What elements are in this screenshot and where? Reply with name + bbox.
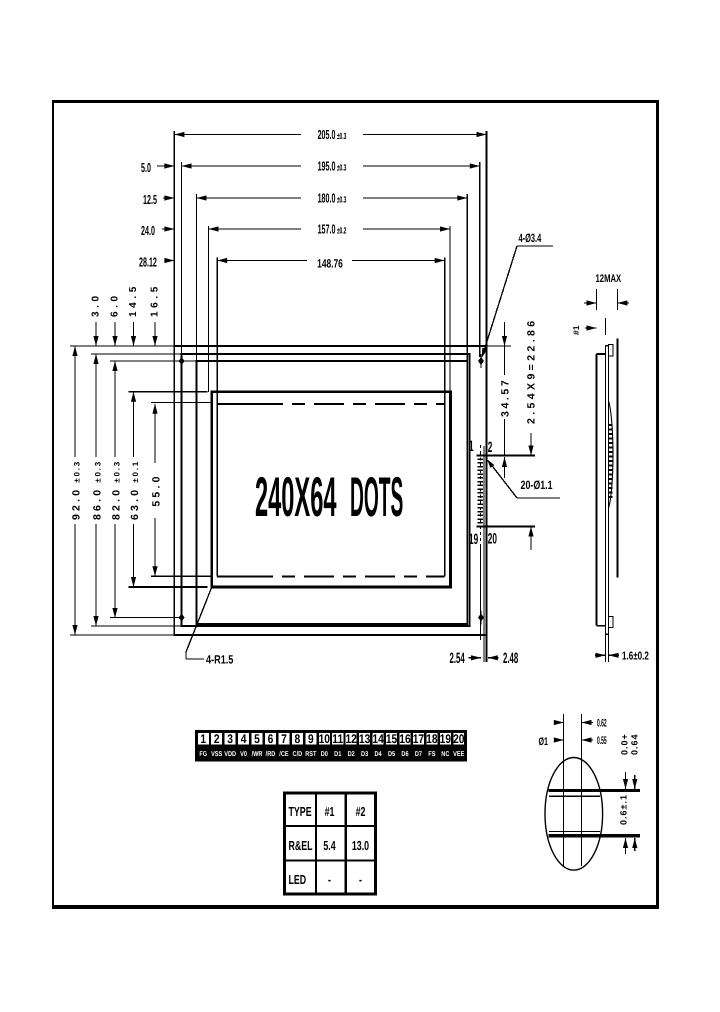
- svg-text:4-Ø3.4: 4-Ø3.4: [519, 231, 542, 245]
- svg-text:VEE: VEE: [453, 751, 464, 758]
- svg-text:#1: #1: [325, 804, 335, 819]
- svg-text:12.5: 12.5: [143, 192, 157, 207]
- svg-text:14: 14: [372, 732, 383, 746]
- svg-text:4: 4: [241, 732, 247, 746]
- svg-text:4-R1.5: 4-R1.5: [206, 653, 234, 667]
- svg-text:12: 12: [345, 732, 356, 746]
- svg-text:D4: D4: [374, 751, 381, 758]
- svg-text:2.54: 2.54: [450, 650, 466, 667]
- svg-text:D1: D1: [334, 751, 341, 758]
- svg-text:12MAX: 12MAX: [596, 273, 622, 285]
- svg-text:/WR: /WR: [252, 750, 263, 758]
- svg-text:19: 19: [440, 732, 451, 746]
- svg-text:D7: D7: [415, 751, 422, 758]
- svg-text:20: 20: [488, 531, 497, 548]
- svg-text:14.5: 14.5: [128, 283, 139, 317]
- svg-text:82.0 ±0.3: 82.0 ±0.3: [111, 460, 123, 520]
- svg-text:#2: #2: [356, 804, 366, 819]
- svg-text:-: -: [328, 872, 331, 887]
- svg-text:3: 3: [227, 732, 233, 746]
- svg-text:0.64: 0.64: [630, 733, 640, 755]
- svg-text:D0: D0: [321, 751, 328, 758]
- svg-text:2.48: 2.48: [503, 650, 518, 667]
- svg-text:3.0: 3.0: [91, 292, 102, 317]
- svg-text:1: 1: [469, 438, 474, 455]
- svg-text:LED: LED: [289, 872, 307, 887]
- svg-text:D3: D3: [361, 751, 368, 758]
- svg-text:17: 17: [413, 732, 424, 746]
- svg-text:5.4: 5.4: [323, 838, 336, 853]
- svg-text:C/D: C/D: [293, 750, 303, 758]
- svg-text:86.0 ±0.3: 86.0 ±0.3: [92, 460, 104, 520]
- svg-text:63.0 ±0.1: 63.0 ±0.1: [129, 460, 141, 520]
- svg-text:VSS: VSS: [211, 751, 222, 758]
- svg-text:/CE: /CE: [279, 750, 289, 758]
- svg-text:6.0: 6.0: [110, 292, 121, 317]
- svg-text:TYPE: TYPE: [289, 804, 312, 819]
- svg-text:D5: D5: [388, 751, 395, 758]
- svg-text:9: 9: [308, 732, 314, 746]
- svg-text:RST: RST: [305, 751, 317, 758]
- svg-text:92.0 ±0.3: 92.0 ±0.3: [71, 460, 83, 520]
- svg-text:NC: NC: [441, 751, 449, 758]
- svg-text:0.55: 0.55: [597, 735, 607, 747]
- svg-text:/RD: /RD: [266, 750, 276, 758]
- svg-text:10: 10: [319, 732, 330, 746]
- svg-text:0.6±.1: 0.6±.1: [619, 794, 629, 825]
- svg-text:18: 18: [426, 732, 437, 746]
- svg-text:DOTS: DOTS: [350, 465, 403, 528]
- svg-text:1.6±0.2: 1.6±0.2: [622, 651, 649, 663]
- svg-text:15: 15: [386, 732, 397, 746]
- svg-text:D2: D2: [348, 751, 355, 758]
- svg-text:8: 8: [295, 732, 301, 746]
- svg-text:#1: #1: [571, 325, 581, 335]
- svg-text:5.0: 5.0: [141, 160, 151, 175]
- svg-text:2.54X9=22.86: 2.54X9=22.86: [526, 318, 538, 425]
- svg-text:R&EL: R&EL: [289, 838, 313, 853]
- svg-text:7: 7: [281, 732, 287, 746]
- svg-text:V0: V0: [240, 751, 247, 758]
- svg-text:0.0+: 0.0+: [620, 733, 630, 755]
- svg-text:0.62: 0.62: [597, 718, 607, 730]
- svg-text:D6: D6: [401, 751, 408, 758]
- svg-text:240X64: 240X64: [255, 465, 336, 528]
- svg-text:16: 16: [399, 732, 410, 746]
- svg-text:20: 20: [453, 732, 464, 746]
- svg-text:20-Ø1.1: 20-Ø1.1: [521, 478, 553, 492]
- svg-text:6: 6: [268, 732, 274, 746]
- svg-text:VDD: VDD: [224, 751, 236, 758]
- svg-text:2: 2: [488, 439, 493, 456]
- svg-text:13: 13: [359, 732, 370, 746]
- svg-text:24.0: 24.0: [141, 223, 155, 238]
- svg-text:55.0: 55.0: [151, 473, 163, 506]
- svg-text:16.5: 16.5: [150, 283, 161, 317]
- svg-text:34.57: 34.57: [500, 378, 512, 417]
- svg-text:13.0: 13.0: [352, 838, 369, 853]
- svg-text:FG: FG: [199, 751, 207, 758]
- svg-text:1: 1: [200, 732, 206, 746]
- svg-text:28.12: 28.12: [139, 255, 157, 270]
- svg-text:2: 2: [214, 732, 220, 746]
- svg-text:11: 11: [332, 732, 343, 746]
- svg-text:19: 19: [469, 531, 478, 548]
- svg-text:5: 5: [254, 732, 260, 746]
- svg-text:Ø1: Ø1: [539, 736, 549, 748]
- svg-text:FS: FS: [428, 751, 435, 758]
- svg-text:148.76: 148.76: [317, 257, 343, 271]
- svg-text:-: -: [359, 872, 362, 887]
